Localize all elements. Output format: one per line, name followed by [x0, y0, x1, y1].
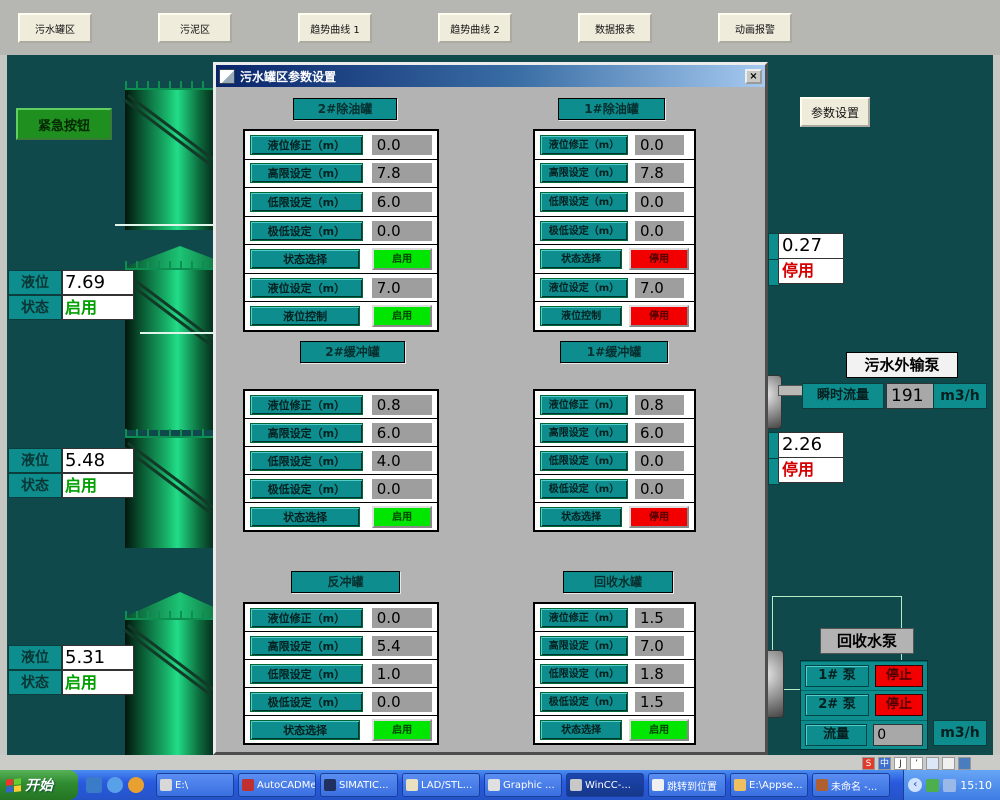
ladder-icon — [127, 624, 215, 691]
parameter-dialog: 污水罐区参数设置 × 2#除油罐 液位修正（m）0.0高限设定（m）7.8低限设… — [213, 62, 768, 755]
level-value[interactable]: 7.69 — [62, 270, 134, 295]
param-row: 状态选择启用 — [245, 715, 437, 743]
param-label: 极低设定（m） — [250, 692, 363, 712]
param-label: 低限设定（m） — [540, 192, 628, 212]
param-label: 极低设定（m） — [540, 692, 628, 712]
param-label: 状态选择 — [250, 249, 360, 269]
left-edge-strip — [0, 55, 7, 755]
tank3-readout: 液位 5.31 状态 启用 — [8, 645, 134, 695]
param-value[interactable]: 7.0 — [372, 278, 432, 298]
task-button-icon — [160, 779, 172, 791]
param-row: 低限设定（m）4.0 — [245, 446, 437, 474]
status-button[interactable]: 启用 — [372, 305, 432, 327]
start-button[interactable]: 开始 — [0, 770, 78, 800]
status-button[interactable]: 启用 — [629, 719, 689, 741]
param-label: 极低设定（m） — [250, 479, 363, 499]
param-row: 高限设定（m）7.8 — [535, 159, 694, 188]
nav-button-trend-1[interactable]: 趋势曲线 1 — [298, 13, 372, 43]
param-value[interactable]: 0.8 — [635, 395, 684, 415]
param-label: 液位修正（m） — [250, 395, 363, 415]
meter-status[interactable]: 停用 — [778, 458, 844, 483]
panel-box: 液位修正（m）0.0高限设定（m）7.8低限设定（m）6.0极低设定（m）0.0… — [243, 129, 439, 332]
param-value[interactable]: 1.0 — [372, 664, 432, 684]
task-button-icon — [488, 779, 500, 791]
meter-status[interactable]: 停用 — [778, 259, 844, 284]
panel-box: 液位修正（m）0.0高限设定（m）7.8低限设定（m）0.0极低设定（m）0.0… — [533, 129, 696, 332]
start-label: 开始 — [25, 775, 53, 795]
param-label: 极低设定（m） — [250, 221, 363, 241]
param-row: 低限设定（m）1.0 — [245, 659, 437, 687]
status-value[interactable]: 启用 — [62, 295, 134, 320]
param-row: 状态选择停用 — [535, 502, 694, 530]
param-label: 状态选择 — [250, 507, 360, 527]
param-value[interactable]: 0.8 — [372, 395, 432, 415]
taskbar: 开始 E:\AutoCADMe...SIMATIC...LAD/STL...Gr… — [0, 770, 1000, 800]
param-label: 低限设定（m） — [250, 664, 363, 684]
quick-launch — [86, 777, 144, 793]
nav-button-sludge-area[interactable]: 污泥区 — [158, 13, 232, 43]
param-label: 低限设定（m） — [540, 664, 628, 684]
param-row: 液位修正（m）0.8 — [535, 391, 694, 418]
quick-launch-icon[interactable] — [128, 777, 144, 793]
system-tray: ‹ 15:10 — [903, 770, 1000, 800]
param-label: 高限设定（m） — [540, 636, 628, 656]
windows-logo-icon — [6, 778, 21, 793]
recycle-pump-table: 1# 泵停止2# 泵停止流量0 — [800, 660, 928, 750]
task-button[interactable]: SIMATIC... — [320, 773, 398, 797]
language-bar-icon[interactable]: 中 — [878, 757, 891, 770]
pipe-line — [115, 224, 213, 226]
level-label: 液位 — [8, 645, 62, 670]
level-meter-mid: 2.26 停用 — [778, 432, 844, 483]
instant-flow-label: 瞬时流量 — [802, 383, 884, 409]
param-row: 高限设定（m）5.4 — [245, 631, 437, 659]
param-label: 液位修正（m） — [540, 395, 628, 415]
param-label: 液位修正（m） — [540, 608, 628, 628]
param-value[interactable]: 6.0 — [635, 423, 684, 443]
panel-header: 2#缓冲罐 — [300, 341, 405, 363]
flow-unit-label: m3/h — [933, 720, 987, 746]
level-value[interactable]: 5.48 — [62, 448, 134, 473]
taskbar-clock: 15:10 — [960, 779, 992, 792]
nav-button-wastewater-tank-area[interactable]: 污水罐区 — [18, 13, 92, 43]
param-row: 液位修正（m）0.8 — [245, 391, 437, 418]
param-row: 液位设定（m）7.0 — [245, 273, 437, 302]
status-label: 状态 — [8, 670, 62, 695]
panel-box: 液位修正（m）1.5高限设定（m）7.0低限设定（m）1.8极低设定（m）1.5… — [533, 602, 696, 745]
pump-status-button[interactable]: 停止 — [875, 665, 923, 687]
level-value[interactable]: 5.31 — [62, 645, 134, 670]
tray-shield-icon[interactable] — [926, 779, 939, 792]
meter-value[interactable]: 0.27 — [778, 233, 844, 259]
language-bar: S中J’ — [862, 757, 971, 770]
param-value[interactable]: 7.8 — [372, 163, 432, 183]
pump-row: 流量0 — [801, 720, 927, 749]
status-label: 状态 — [8, 295, 62, 320]
param-label: 极低设定（m） — [540, 221, 628, 241]
param-value[interactable]: 6.0 — [372, 192, 432, 212]
param-label: 高限设定（m） — [540, 163, 628, 183]
param-row: 低限设定（m）6.0 — [245, 187, 437, 216]
param-label: 液位设定（m） — [540, 278, 628, 298]
task-buttons: E:\AutoCADMe...SIMATIC...LAD/STL...Graph… — [156, 773, 890, 797]
param-label: 液位控制 — [250, 306, 360, 326]
language-bar-icon[interactable]: S — [862, 757, 875, 770]
param-value[interactable]: 6.0 — [372, 423, 432, 443]
status-button[interactable]: 启用 — [372, 248, 432, 270]
panel-header: 2#除油罐 — [293, 98, 397, 120]
param-label: 高限设定（m） — [250, 636, 363, 656]
param-label: 低限设定（m） — [250, 192, 363, 212]
dialog-icon — [219, 69, 235, 84]
param-label: 极低设定（m） — [540, 479, 628, 499]
tank1-readout: 液位 7.69 状态 启用 — [8, 270, 134, 320]
param-row: 高限设定（m）7.0 — [535, 631, 694, 659]
pump-label: 2# 泵 — [805, 694, 869, 716]
pipe-line — [140, 332, 213, 334]
param-row: 状态选择启用 — [535, 715, 694, 743]
status-button[interactable]: 停用 — [629, 305, 689, 327]
tank-graphic — [125, 268, 215, 430]
top-nav-bar: 污水罐区 污泥区 趋势曲线 1 趋势曲线 2 数据报表 动画报警 — [0, 0, 1000, 55]
param-label: 液位修正（m） — [540, 135, 628, 155]
param-label: 状态选择 — [540, 507, 622, 527]
panel-header: 反冲罐 — [291, 571, 400, 593]
param-label: 低限设定（m） — [540, 451, 628, 471]
task-button[interactable]: 跳转到位置 — [648, 773, 726, 797]
internet-explorer-icon[interactable] — [107, 777, 123, 793]
close-icon[interactable]: × — [745, 69, 762, 84]
status-button[interactable]: 停用 — [629, 248, 689, 270]
status-label: 状态 — [8, 473, 62, 498]
param-value[interactable]: 0.0 — [372, 608, 432, 628]
pump-status-button[interactable]: 停止 — [875, 694, 923, 716]
param-row: 极低设定（m）0.0 — [245, 474, 437, 502]
param-row: 液位控制启用 — [245, 301, 437, 330]
param-label: 状态选择 — [540, 720, 622, 740]
tank-graphic — [125, 618, 215, 755]
meter-value[interactable]: 2.26 — [778, 432, 844, 458]
param-row: 液位控制停用 — [535, 301, 694, 330]
task-button[interactable]: 未命名 -... — [812, 773, 890, 797]
param-row: 低限设定（m）1.8 — [535, 659, 694, 687]
tank-graphic — [125, 88, 215, 230]
task-button[interactable]: E:\ — [156, 773, 234, 797]
param-row: 高限设定（m）6.0 — [245, 418, 437, 446]
nav-button-alarm[interactable]: 动画报警 — [718, 13, 792, 43]
task-button-icon — [734, 779, 746, 791]
task-button[interactable]: LAD/STL... — [402, 773, 480, 797]
panel-box: 液位修正（m）0.8高限设定（m）6.0低限设定（m）0.0极低设定（m）0.0… — [533, 389, 696, 532]
task-button-icon — [652, 779, 664, 791]
param-row: 低限设定（m）0.0 — [535, 446, 694, 474]
desktop-strip — [0, 755, 1000, 770]
level-meter-top: 0.27 停用 — [778, 233, 844, 284]
tray-network-icon[interactable] — [943, 779, 956, 792]
task-button-label: AutoCADMe... — [257, 780, 316, 791]
task-button-label: Graphic ... — [503, 780, 555, 791]
task-button[interactable]: Graphic ... — [484, 773, 562, 797]
panel-header: 1#除油罐 — [558, 98, 665, 120]
task-button-icon — [570, 779, 582, 791]
task-button-label: E:\Appse... — [749, 780, 803, 791]
param-row: 低限设定（m）0.0 — [535, 187, 694, 216]
pump-row: 1# 泵停止 — [801, 661, 927, 690]
pump-row: 2# 泵停止 — [801, 690, 927, 719]
pump-flow-value[interactable]: 0 — [873, 724, 923, 746]
panel-header: 1#缓冲罐 — [560, 341, 668, 363]
pump-label: 流量 — [805, 724, 867, 746]
task-button[interactable]: WinCC-... — [566, 773, 644, 797]
quick-launch-icon[interactable] — [86, 777, 102, 793]
param-label: 高限设定（m） — [250, 423, 363, 443]
language-bar-icon[interactable]: ’ — [910, 757, 923, 770]
level-label: 液位 — [8, 448, 62, 473]
export-pump-title: 污水外输泵 — [846, 352, 958, 378]
param-label: 状态选择 — [250, 720, 360, 740]
dialog-titlebar[interactable]: 污水罐区参数设置 × — [216, 65, 765, 87]
param-value[interactable]: 0.0 — [635, 479, 684, 499]
param-row: 极低设定（m）0.0 — [535, 474, 694, 502]
recycle-pump-title: 回收水泵 — [820, 628, 914, 654]
language-bar-icon[interactable] — [942, 757, 955, 770]
param-row: 极低设定（m）1.5 — [535, 687, 694, 715]
param-row: 液位修正（m）0.0 — [535, 131, 694, 159]
task-button-icon — [242, 779, 254, 791]
param-label: 低限设定（m） — [250, 451, 363, 471]
param-value[interactable]: 0.0 — [635, 192, 684, 212]
param-value[interactable]: 5.4 — [372, 636, 432, 656]
pump-label: 1# 泵 — [805, 665, 869, 687]
nav-button-report[interactable]: 数据报表 — [578, 13, 652, 43]
chevron-left-icon[interactable]: ‹ — [908, 778, 922, 792]
task-button-label: SIMATIC... — [339, 780, 389, 791]
param-row: 液位修正（m）1.5 — [535, 604, 694, 631]
status-button[interactable]: 启用 — [372, 506, 432, 528]
param-label: 液位修正（m） — [250, 135, 363, 155]
language-bar-icon[interactable] — [926, 757, 939, 770]
panel-header: 回收水罐 — [563, 571, 673, 593]
param-value[interactable]: 1.5 — [635, 692, 684, 712]
param-label: 高限设定（m） — [250, 163, 363, 183]
task-button-icon — [816, 779, 828, 791]
scada-main-view: 紧急按钮 液位 7.69 状态 启用 液位 5.48 状态 启用 液位 5.31… — [0, 55, 1000, 755]
status-value[interactable]: 启用 — [62, 670, 134, 695]
param-row: 高限设定（m）7.8 — [245, 159, 437, 188]
param-value[interactable]: 4.0 — [372, 451, 432, 471]
param-value[interactable]: 0.0 — [372, 479, 432, 499]
param-label: 液位修正（m） — [250, 608, 363, 628]
param-row: 极低设定（m）0.0 — [245, 216, 437, 245]
panel-box: 液位修正（m）0.0高限设定（m）5.4低限设定（m）1.0极低设定（m）0.0… — [243, 602, 439, 745]
instant-flow-value[interactable]: 191 — [886, 383, 934, 409]
param-value[interactable]: 7.8 — [635, 163, 684, 183]
dialog-title: 污水罐区参数设置 — [240, 68, 336, 85]
flow-unit-label: m3/h — [933, 383, 987, 409]
param-value[interactable]: 7.0 — [635, 278, 684, 298]
param-row: 高限设定（m）6.0 — [535, 418, 694, 446]
task-button-label: E:\ — [175, 780, 188, 791]
param-value[interactable]: 0.0 — [372, 221, 432, 241]
dialog-body: 2#除油罐 液位修正（m）0.0高限设定（m）7.8低限设定（m）6.0极低设定… — [216, 87, 765, 754]
task-button-label: 未命名 -... — [831, 778, 877, 793]
param-value[interactable]: 7.0 — [635, 636, 684, 656]
status-value[interactable]: 启用 — [62, 473, 134, 498]
param-value[interactable]: 0.0 — [635, 221, 684, 241]
pipe-stub — [778, 385, 804, 396]
panel-box: 液位修正（m）0.8高限设定（m）6.0低限设定（m）4.0极低设定（m）0.0… — [243, 389, 439, 532]
param-row: 状态选择启用 — [245, 244, 437, 273]
param-label: 状态选择 — [540, 249, 622, 269]
task-button-icon — [406, 779, 418, 791]
nav-button-trend-2[interactable]: 趋势曲线 2 — [438, 13, 512, 43]
param-value[interactable]: 0.0 — [372, 692, 432, 712]
param-value[interactable]: 1.8 — [635, 664, 684, 684]
task-button-icon — [324, 779, 336, 791]
param-value[interactable]: 0.0 — [635, 451, 684, 471]
level-label: 液位 — [8, 270, 62, 295]
param-label: 液位控制 — [540, 306, 622, 326]
param-row: 液位修正（m）0.0 — [245, 131, 437, 159]
param-value[interactable]: 1.5 — [635, 608, 684, 628]
task-button[interactable]: E:\Appse... — [730, 773, 808, 797]
ladder-icon — [127, 94, 215, 161]
status-button[interactable]: 启用 — [372, 719, 432, 741]
param-row: 极低设定（m）0.0 — [535, 216, 694, 245]
param-row: 状态选择启用 — [245, 502, 437, 530]
language-bar-icon[interactable]: J — [894, 757, 907, 770]
task-button[interactable]: AutoCADMe... — [238, 773, 316, 797]
status-button[interactable]: 停用 — [629, 506, 689, 528]
task-button-label: WinCC-... — [585, 780, 631, 791]
emergency-button[interactable]: 紧急按钮 — [16, 108, 112, 140]
ladder-icon — [127, 442, 215, 509]
language-bar-icon[interactable] — [958, 757, 971, 770]
param-row: 液位修正（m）0.0 — [245, 604, 437, 631]
param-row: 液位设定（m）7.0 — [535, 273, 694, 302]
param-label: 液位设定（m） — [250, 278, 363, 298]
param-value[interactable]: 0.0 — [635, 135, 684, 155]
tank-graphic — [125, 436, 215, 548]
task-button-label: LAD/STL... — [421, 780, 472, 791]
param-row: 极低设定（m）0.0 — [245, 687, 437, 715]
right-edge-strip — [993, 55, 1000, 755]
task-button-label: 跳转到位置 — [667, 778, 717, 793]
param-label: 高限设定（m） — [540, 423, 628, 443]
param-value[interactable]: 0.0 — [372, 135, 432, 155]
parameter-settings-button[interactable]: 参数设置 — [800, 97, 870, 127]
param-row: 状态选择停用 — [535, 244, 694, 273]
tank2-readout: 液位 5.48 状态 启用 — [8, 448, 134, 498]
